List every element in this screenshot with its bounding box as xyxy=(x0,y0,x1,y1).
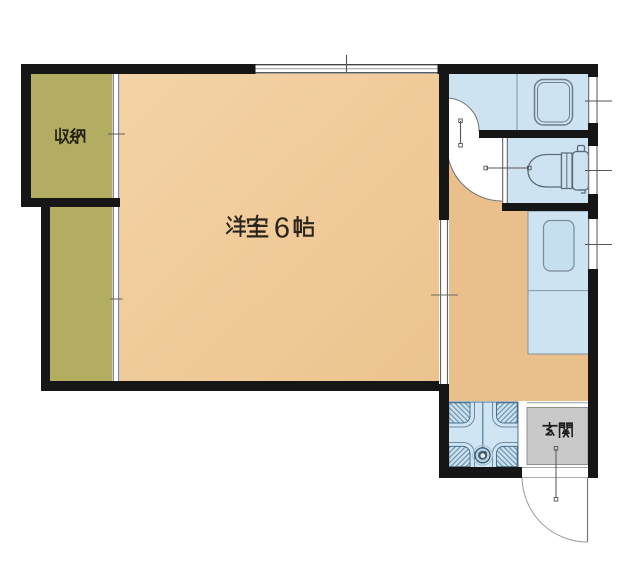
svg-text:6: 6 xyxy=(274,212,290,244)
